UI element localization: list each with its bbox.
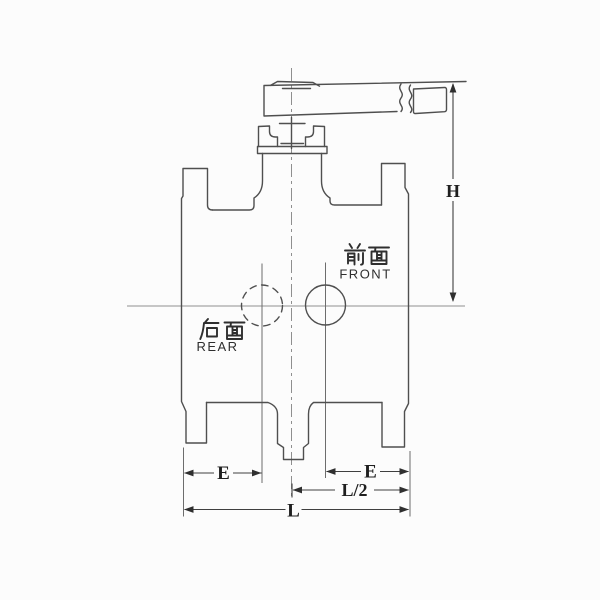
body-bottom-drain-boss bbox=[207, 403, 383, 460]
drawing-canvas: H E E L/2 L 前面 FRONT bbox=[0, 0, 600, 600]
arrowhead-right-icon bbox=[400, 487, 410, 494]
neck-left bbox=[213, 154, 263, 211]
pad-bracket-right bbox=[306, 126, 325, 147]
dim-H-label: H bbox=[446, 181, 460, 201]
handle-break-symbol bbox=[400, 84, 412, 113]
neck-right bbox=[322, 154, 382, 206]
handle-lever bbox=[264, 82, 466, 117]
mounting-pad-plate bbox=[258, 147, 328, 154]
centerlines bbox=[127, 68, 465, 498]
rear-annotation: 后面 REAR bbox=[196, 318, 244, 354]
front-annotation: 前面 FRONT bbox=[339, 243, 391, 282]
arrowhead-down-icon bbox=[450, 293, 457, 303]
flange-right bbox=[382, 164, 409, 448]
pad-bracket-left bbox=[259, 126, 278, 147]
front-label-cn: 前面 bbox=[345, 243, 389, 268]
arrowhead-left-icon bbox=[184, 470, 194, 477]
stem-assembly bbox=[258, 118, 328, 154]
handle-end-cap bbox=[414, 87, 447, 113]
front-label-en: FRONT bbox=[339, 267, 391, 282]
dim-L2: L/2 bbox=[292, 479, 409, 500]
dim-L2-label: L/2 bbox=[341, 480, 367, 500]
rear-label-en: REAR bbox=[196, 339, 238, 354]
dim-L-label: L bbox=[287, 501, 300, 522]
handle-bar bbox=[264, 82, 466, 117]
arrowhead-right-icon bbox=[400, 468, 410, 475]
dim-L: L bbox=[184, 500, 409, 522]
arrowhead-up-icon bbox=[450, 83, 457, 93]
dim-E-left: E bbox=[184, 461, 262, 484]
arrowhead-right-icon bbox=[400, 506, 410, 513]
arrowhead-left-icon bbox=[293, 487, 303, 494]
arrowhead-left-icon bbox=[326, 468, 336, 475]
valve-drawing: H E E L/2 L 前面 FRONT bbox=[0, 0, 600, 600]
stem bbox=[280, 118, 306, 149]
dim-H: H bbox=[444, 83, 463, 302]
dim-E-left-label: E bbox=[217, 463, 230, 484]
arrowhead-right-icon bbox=[252, 470, 262, 477]
arrowhead-left-icon bbox=[184, 506, 194, 513]
